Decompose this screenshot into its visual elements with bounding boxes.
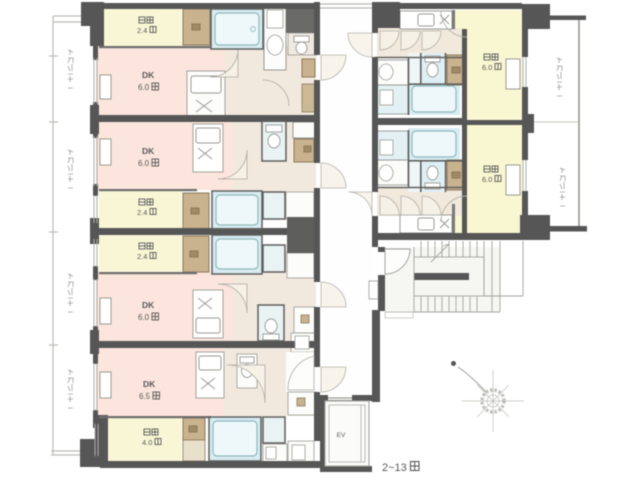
svg-text:2.4: 2.4 [137,26,147,35]
svg-text:DK: DK [142,70,155,80]
svg-text:4.0: 4.0 [142,438,152,447]
svg-text:6.0: 6.0 [482,63,492,72]
svg-text:6.5: 6.5 [139,392,151,401]
svg-text:DK: DK [142,146,155,156]
svg-text:DK: DK [143,379,156,389]
svg-text:6.0: 6.0 [482,175,492,184]
svg-text:6.0: 6.0 [138,159,150,168]
svg-text:2~13: 2~13 [382,462,407,474]
svg-text:2.4: 2.4 [137,252,147,261]
svg-text:6.0: 6.0 [138,83,150,92]
svg-text:6.0: 6.0 [138,313,150,322]
svg-text:2.4: 2.4 [137,208,147,217]
svg-text:DK: DK [142,300,155,310]
svg-text:EV: EV [337,432,346,439]
